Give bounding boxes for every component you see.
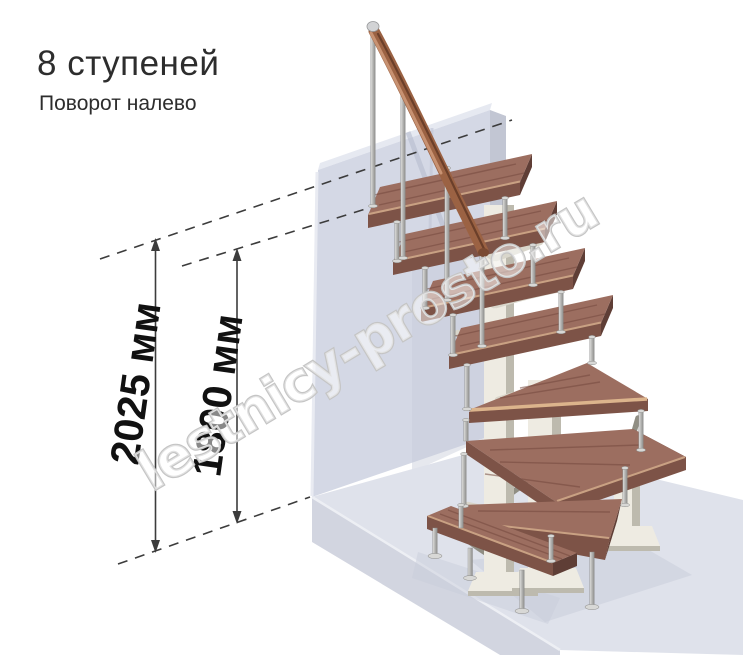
page-subtitle: Поворот налево	[39, 92, 197, 116]
winder-floor-rod	[590, 552, 595, 606]
step-leg	[433, 528, 438, 556]
page-title: 8 ступеней	[37, 44, 219, 84]
rod	[458, 503, 465, 528]
dimension-total-height: 2025 мм	[101, 238, 169, 553]
rod	[463, 418, 470, 441]
rod	[587, 335, 596, 364]
staircase-diagram: 2025 мм 1800 мм lestnicy-prosto.ru 8 сту…	[0, 0, 743, 655]
datum-line-floor	[118, 497, 310, 564]
step-leg	[520, 570, 525, 611]
handrail-top-ferrule	[367, 22, 379, 32]
